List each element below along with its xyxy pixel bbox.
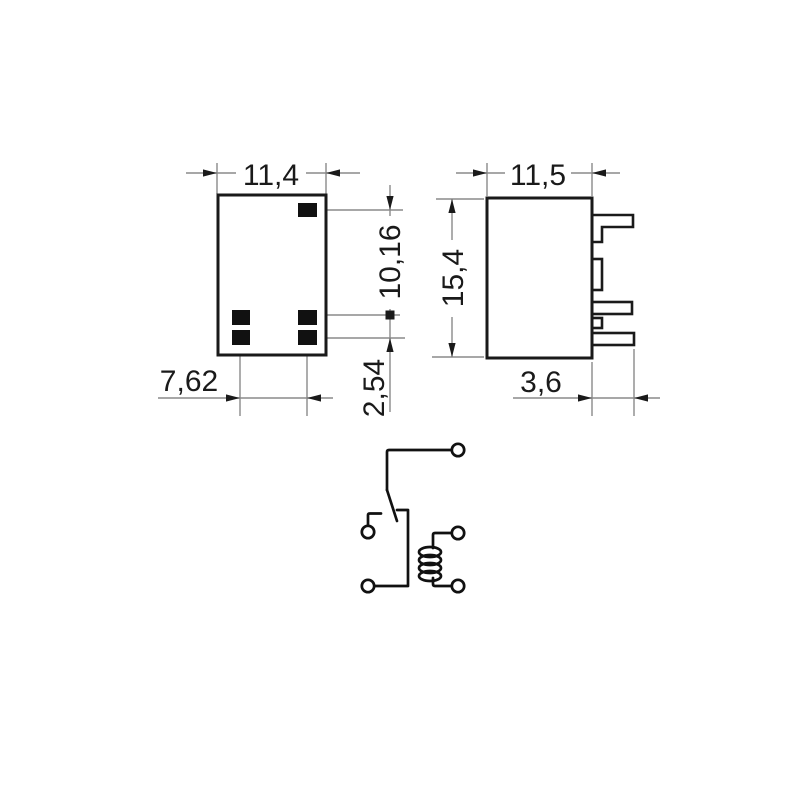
relay-body-outline-side [487,198,592,358]
arrow-left-icon [326,169,340,176]
terminal-contact [362,526,374,538]
technical-drawing-page: 11,4 10,16 2,54 7,62 [0,0,800,800]
coil-winding [419,547,441,581]
dim-label-side-width: 11,5 [510,159,566,192]
dim-label-body-width: 11,4 [243,159,299,192]
arrow-right-icon [226,394,240,401]
arrow-right-icon [578,394,592,401]
arrow-left-icon [307,394,321,401]
dim-label-side-height: 15,4 [437,249,470,307]
side-view-pins [588,215,634,345]
pad-coil-top-right [298,203,317,217]
dimension-endpoint-square [386,311,395,320]
arrow-left-icon [634,394,648,401]
arrow-up-icon [448,199,455,213]
terminal-switch-top [452,444,464,456]
relay-schematic [362,444,464,592]
arrow-right-icon [203,169,217,176]
pad-upper-left [232,310,250,325]
pin-top-profile [589,215,633,242]
wire-common-top [387,450,452,490]
bottom-view: 11,4 10,16 2,54 7,62 [158,158,407,417]
arrow-down-icon [448,343,455,357]
dim-label-pin-span: 7,62 [160,365,218,398]
coil-lead-top [433,533,452,548]
dim-label-side-pin-length: 3,6 [520,366,562,399]
arrow-right-icon [473,169,487,176]
arrow-down-icon [386,196,393,210]
schematic-terminals [362,444,464,592]
arrow-up-icon [386,338,393,352]
terminal-coil-a [452,527,464,539]
pad-lower-left [232,330,250,345]
terminal-common [362,580,374,592]
relay-drawing-canvas: 11,4 10,16 2,54 7,62 [0,0,800,800]
terminal-coil-b [452,580,464,592]
wire-pole [375,510,408,586]
wire-fixed-contact [368,514,381,527]
dim-label-pin-offset: 10,16 [374,224,407,299]
pad-lower-right [298,330,317,345]
switch-blade [387,490,397,521]
dim-label-pin-pitch: 2,54 [358,359,391,417]
pin-bottom-profile [588,333,634,345]
arrow-left-icon [592,169,606,176]
pin-middle-profile [588,302,632,314]
pad-upper-right [298,310,317,325]
side-view: 11,5 15,4 3,6 [432,158,660,416]
